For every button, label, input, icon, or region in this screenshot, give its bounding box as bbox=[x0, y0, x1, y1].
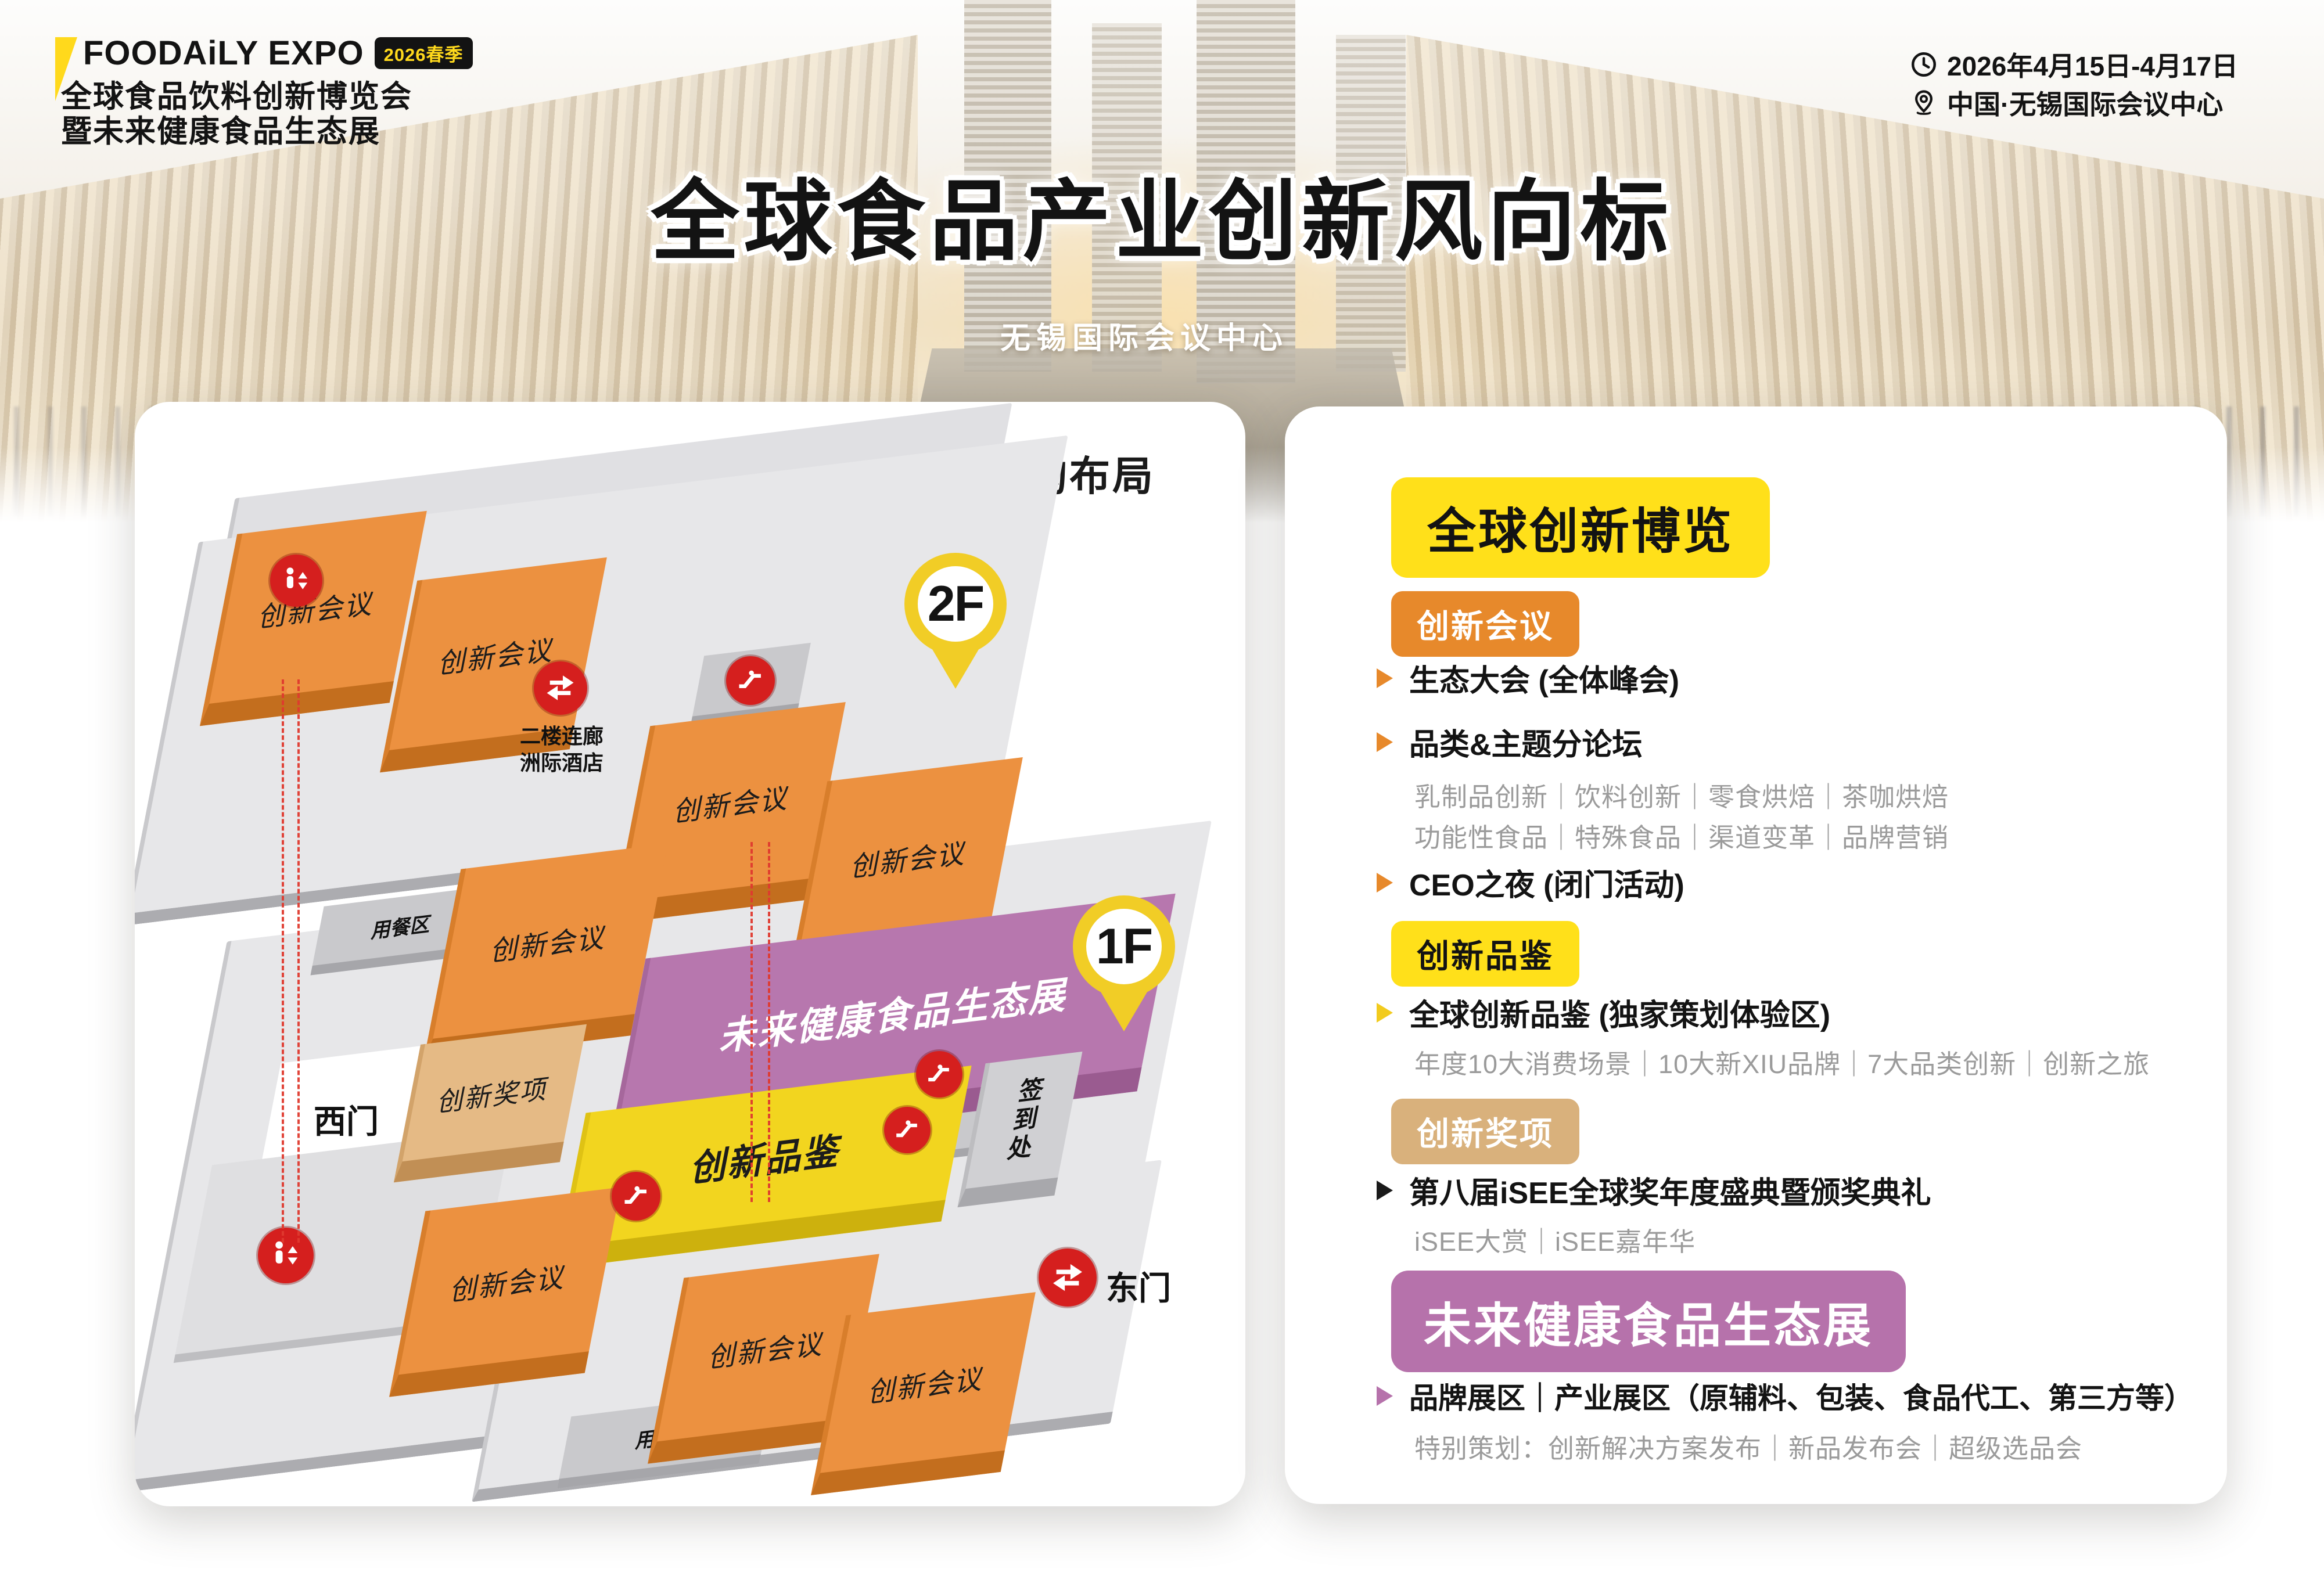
elevator-icon bbox=[258, 1228, 314, 1283]
escalator-icon bbox=[612, 1172, 660, 1221]
section-badge-awards: 创新奖项 bbox=[1391, 1099, 1579, 1164]
bullet-triangle-icon bbox=[1377, 732, 1393, 752]
floor-map-card: 整体结构布局 创新会议 创新会议 创新会议 创新会议 二楼连廊 洲际酒店 bbox=[135, 402, 1245, 1506]
east-gate-transfer-icon bbox=[1039, 1248, 1097, 1307]
floor-connector-line bbox=[282, 679, 284, 1243]
bullet-triangle-icon bbox=[1377, 873, 1393, 893]
bullet-triangle-icon bbox=[1377, 668, 1393, 688]
brand-name: FOODAiLY EXPO bbox=[83, 34, 364, 73]
panel-item: 全球创新品鉴 (独家策划体验区) bbox=[1377, 991, 1830, 1034]
bullet-triangle-icon bbox=[1377, 1386, 1393, 1406]
panel-title-badge: 全球创新博览 bbox=[1391, 477, 1770, 578]
clock-icon bbox=[1910, 51, 1938, 78]
escalator-icon bbox=[916, 1051, 962, 1098]
logo-subtitle-2: 暨未来健康食品生态展 bbox=[61, 107, 380, 151]
event-dates: 2026年4月15日-4月17日 bbox=[1910, 45, 2238, 84]
floor2-pin: 2F bbox=[904, 553, 1007, 655]
panel-item-detail: 特别策划：创新解决方案发布｜新品发布会｜超级选品会 bbox=[1414, 1427, 2082, 1465]
panel-item-detail: 乳制品创新｜饮料创新｜零食烘焙｜茶咖烘焙 bbox=[1414, 776, 1949, 814]
floor1-pin: 1F bbox=[1073, 895, 1175, 998]
escalator-icon bbox=[726, 656, 775, 705]
program-panel-card: 全球创新博览 创新会议 生态大会 (全体峰会) 品类&主题分论坛 乳制品创新｜饮… bbox=[1285, 406, 2227, 1504]
escalator-icon bbox=[884, 1107, 931, 1153]
section-badge-tasting: 创新品鉴 bbox=[1391, 921, 1579, 987]
panel-item-detail: 年度10大消费场景｜10大新XIU品牌｜7大品类创新｜创新之旅 bbox=[1414, 1043, 2150, 1081]
elevator-icon bbox=[270, 555, 322, 607]
meeting-room-1f-top: 创新会议 bbox=[423, 844, 668, 1061]
edition-badge: 2026春季 bbox=[375, 37, 473, 69]
floor-connector-line bbox=[750, 842, 753, 1202]
floor-connector-line bbox=[768, 842, 770, 1202]
bullet-triangle-icon bbox=[1377, 1003, 1393, 1023]
exhibition-badge: 未来健康食品生态展 bbox=[1391, 1271, 1906, 1372]
panel-item: 生态大会 (全体峰会) bbox=[1377, 656, 1679, 700]
bridge-label: 二楼连廊 洲际酒店 bbox=[495, 723, 628, 776]
meeting-room-1f-b1: 创新会议 bbox=[389, 1187, 621, 1397]
awards-zone: 创新奖项 bbox=[394, 1024, 587, 1182]
meeting-room-1f-b3: 创新会议 bbox=[811, 1292, 1036, 1495]
main-title: 全球食品产业创新风向标 bbox=[0, 150, 2324, 278]
bullet-triangle-icon bbox=[1377, 1181, 1393, 1200]
poster: 全球食品产业创新风向标 无锡国际会议中心 FOODAiLY EXPO 2026春… bbox=[0, 0, 2324, 1594]
panel-item: CEO之夜 (闭门活动) bbox=[1377, 861, 1684, 904]
panel-item-detail: iSEE大赏｜iSEE嘉年华 bbox=[1414, 1221, 1696, 1258]
panel-item-detail: 功能性食品｜特殊食品｜渠道变革｜品牌营销 bbox=[1414, 816, 1949, 854]
panel-item: 品类&主题分论坛 bbox=[1377, 720, 1643, 764]
west-gate-label: 西门 bbox=[314, 1096, 379, 1143]
building-sign: 无锡国际会议中心 bbox=[0, 314, 2289, 357]
east-gate-label: 东门 bbox=[1106, 1262, 1171, 1309]
bridge-transfer-icon bbox=[534, 661, 587, 715]
panel-item: 第八届iSEE全球奖年度盛典暨颁奖典礼 bbox=[1377, 1168, 1931, 1212]
location-pin-icon bbox=[1910, 89, 1938, 117]
floor-connector-line bbox=[297, 679, 300, 1243]
panel-item: 品牌展区｜产业展区（原辅料、包装、食品代工、第三方等） bbox=[1377, 1375, 2193, 1417]
section-badge-meetings: 创新会议 bbox=[1391, 591, 1579, 657]
event-venue: 中国·无锡国际会议中心 bbox=[1910, 84, 2223, 122]
